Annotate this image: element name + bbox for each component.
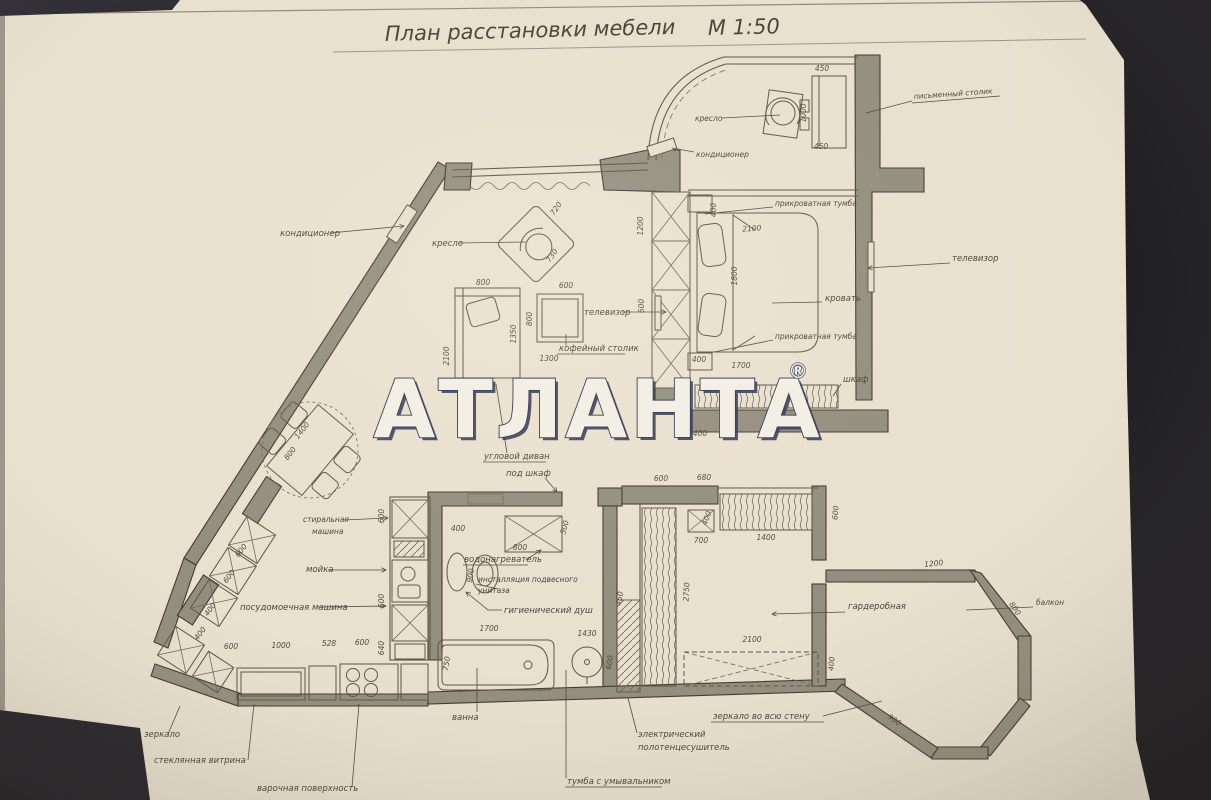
registered-mark: ® [788, 359, 808, 383]
floor-plan-photo: План расстановки мебели М 1:50 [0, 0, 1211, 800]
watermark-text: АТЛАНТА [373, 363, 822, 456]
watermark: АТЛАНТА АТЛАНТА ® [373, 359, 825, 459]
floor-plan-drawing: План расстановки мебели М 1:50 [0, 0, 1211, 800]
